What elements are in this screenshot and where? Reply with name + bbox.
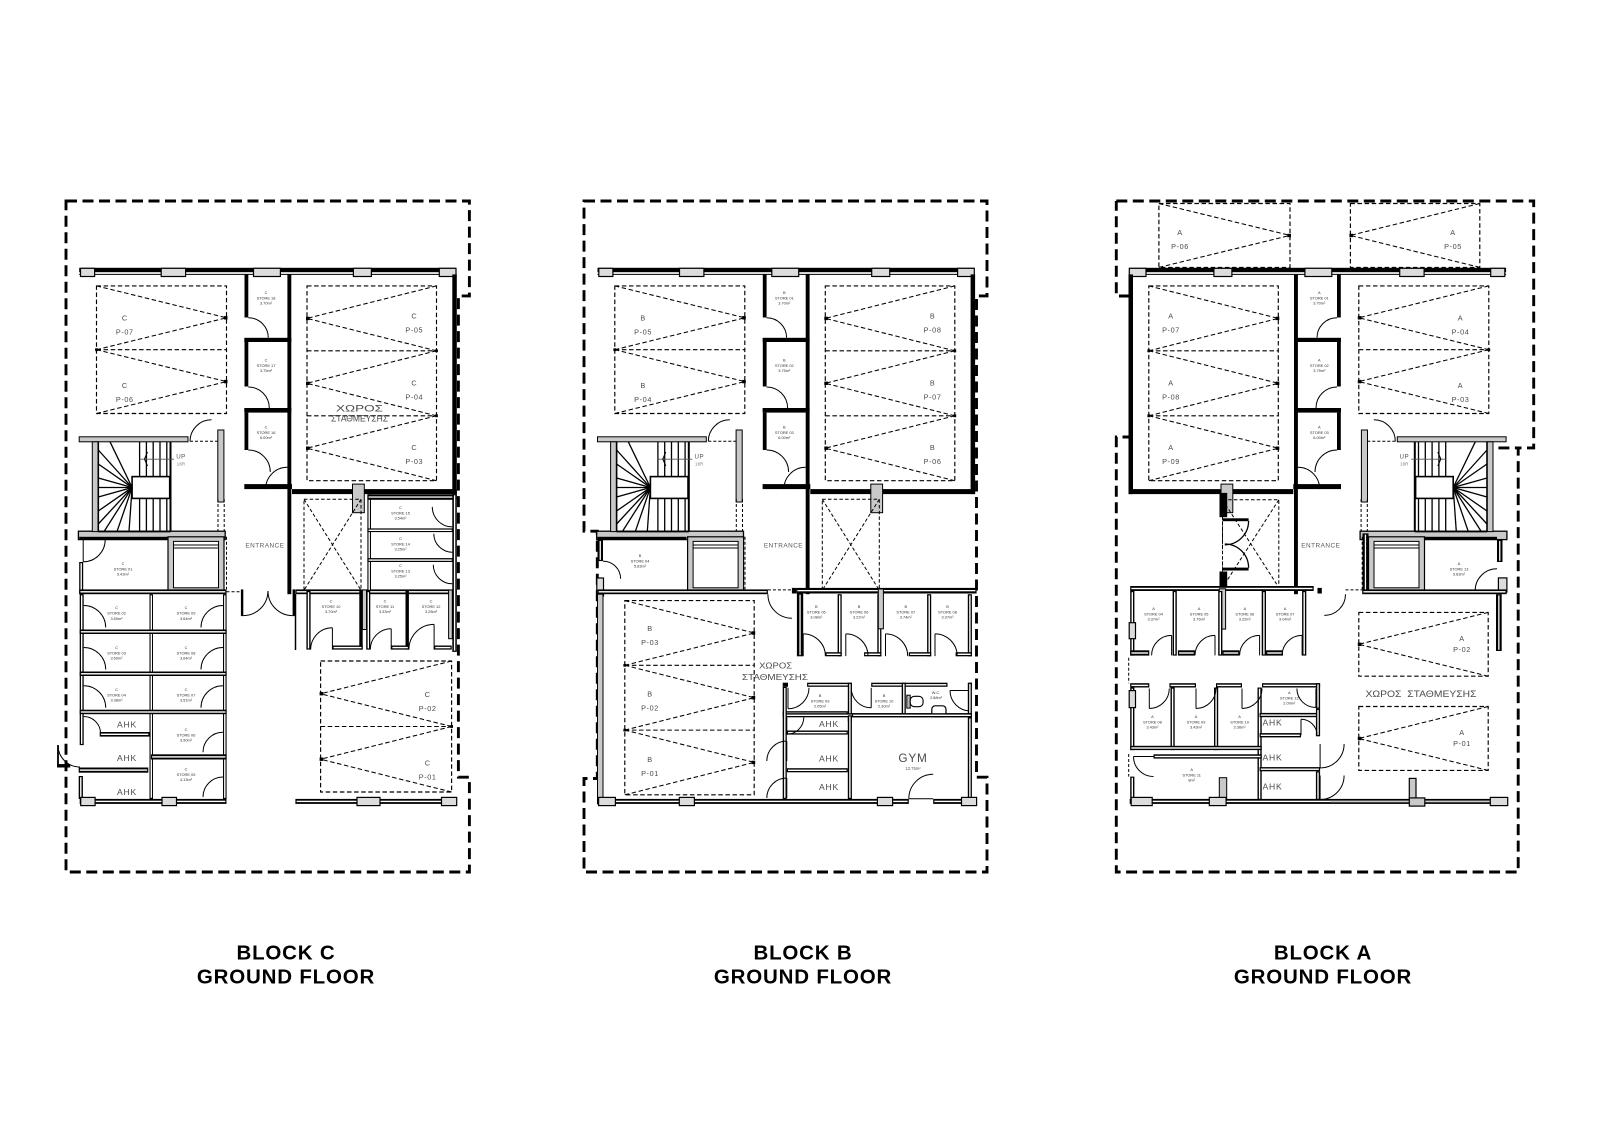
svg-text:AHK: AHK <box>1262 718 1282 728</box>
svg-text:STORE 03: STORE 03 <box>1310 430 1329 435</box>
svg-text:GYM: GYM <box>898 751 927 765</box>
svg-text:STORE 09: STORE 09 <box>177 611 196 616</box>
svg-text:A: A <box>1243 606 1246 611</box>
svg-text:A: A <box>1151 714 1154 719</box>
svg-text:C: C <box>425 759 431 768</box>
svg-text:AHK: AHK <box>117 787 137 797</box>
svg-text:STORE 04: STORE 04 <box>1144 611 1164 616</box>
svg-text:C: C <box>399 536 402 541</box>
svg-text:13.75m²: 13.75m² <box>905 766 921 771</box>
svg-text:A: A <box>1459 728 1464 737</box>
svg-text:STORE 01: STORE 01 <box>1310 295 1329 300</box>
svg-text:3.70m²: 3.70m² <box>325 609 338 614</box>
svg-text:P-03: P-03 <box>641 638 659 647</box>
svg-text:P-07: P-07 <box>924 393 942 402</box>
svg-text:B: B <box>946 604 949 609</box>
svg-text:UP: UP <box>1399 454 1409 461</box>
svg-text:C: C <box>411 312 417 321</box>
svg-text:STORE 05: STORE 05 <box>177 772 196 777</box>
svg-text:C: C <box>122 561 125 566</box>
svg-text:C: C <box>265 425 268 430</box>
svg-text:B: B <box>640 381 645 390</box>
svg-text:ENTRANCE: ENTRANCE <box>1301 543 1340 550</box>
svg-text:A: A <box>1284 606 1287 611</box>
svg-text:3.51m²: 3.51m² <box>180 698 193 703</box>
svg-text:3.08m²: 3.08m² <box>810 615 823 620</box>
svg-text:3.37m²: 3.37m² <box>1147 617 1160 622</box>
svg-text:B: B <box>930 312 935 321</box>
svg-text:3.75m²: 3.75m² <box>778 368 791 373</box>
svg-text:B: B <box>647 624 652 633</box>
svg-text:C: C <box>115 687 118 692</box>
svg-text:P-03: P-03 <box>405 457 423 466</box>
svg-text:B: B <box>640 314 645 323</box>
svg-text:A: A <box>1458 381 1463 390</box>
svg-text:P-04: P-04 <box>634 395 652 404</box>
svg-text:ENTRANCE: ENTRANCE <box>764 543 803 550</box>
svg-text:C: C <box>425 690 431 699</box>
svg-text:3.33m²: 3.33m² <box>379 609 392 614</box>
svg-text:ΧΩΡΟΣ: ΧΩΡΟΣ <box>336 404 384 414</box>
svg-text:B: B <box>647 690 652 699</box>
svg-text:ΧΩΡΟΣ ΣΤΑΘΜΕΥΣΗΣ: ΧΩΡΟΣ ΣΤΑΘΜΕΥΣΗΣ <box>1366 689 1478 699</box>
svg-text:A: A <box>1459 634 1464 643</box>
svg-text:A: A <box>1168 443 1173 452</box>
svg-text:A: A <box>1318 358 1321 363</box>
svg-text:STORE 18: STORE 18 <box>257 295 276 300</box>
svg-text:A: A <box>1168 379 1173 388</box>
svg-text:C: C <box>185 767 188 772</box>
svg-text:STORE 06: STORE 06 <box>177 732 196 737</box>
svg-text:C: C <box>185 687 188 692</box>
svg-text:STORE 08: STORE 08 <box>177 650 196 655</box>
svg-text:B: B <box>639 553 642 558</box>
svg-text:STORE 03: STORE 03 <box>775 430 794 435</box>
svg-text:B: B <box>904 604 907 609</box>
svg-text:3.50m²: 3.50m² <box>110 656 123 661</box>
svg-text:B: B <box>647 755 652 764</box>
svg-text:P-06: P-06 <box>116 395 134 404</box>
svg-text:3.43m²: 3.43m² <box>1190 725 1203 730</box>
svg-text:STORE 02: STORE 02 <box>775 363 794 368</box>
svg-text:P-01: P-01 <box>1453 739 1471 748</box>
svg-text:B: B <box>883 693 886 698</box>
svg-text:P-05: P-05 <box>1444 242 1462 251</box>
svg-text:3.75m²: 3.75m² <box>260 368 273 373</box>
svg-text:P-04: P-04 <box>405 393 423 402</box>
svg-text:3.76m²: 3.76m² <box>1193 617 1206 622</box>
svg-text:STORE 10: STORE 10 <box>1230 719 1250 724</box>
svg-text:STORE 09: STORE 09 <box>811 698 830 703</box>
svg-text:P-04: P-04 <box>1452 328 1470 337</box>
svg-text:18R: 18R <box>1400 462 1409 467</box>
svg-text:AHK: AHK <box>819 754 839 764</box>
svg-text:2.88m²: 2.88m² <box>930 695 943 700</box>
svg-text:C: C <box>411 443 417 452</box>
svg-text:C: C <box>384 599 387 604</box>
svg-text:STORE 04: STORE 04 <box>631 558 651 563</box>
svg-text:3.70m²: 3.70m² <box>260 301 273 306</box>
svg-text:P-05: P-05 <box>634 328 652 337</box>
svg-text:BLOCK B: BLOCK B <box>754 942 853 965</box>
svg-text:AHK: AHK <box>117 753 137 763</box>
svg-text:STORE 01: STORE 01 <box>114 566 133 571</box>
svg-text:STORE 15: STORE 15 <box>391 510 410 515</box>
svg-text:P-02: P-02 <box>1453 645 1471 654</box>
svg-text:B: B <box>815 604 818 609</box>
svg-text:ENTRANCE: ENTRANCE <box>245 543 284 550</box>
svg-text:2.09m²: 2.09m² <box>1283 701 1296 706</box>
svg-text:3.74m²: 3.74m² <box>900 615 913 620</box>
svg-text:BLOCK A: BLOCK A <box>1274 942 1372 965</box>
svg-text:STORE 06: STORE 06 <box>850 609 869 614</box>
svg-text:3.36m²: 3.36m² <box>1234 725 1247 730</box>
svg-text:6.00m²: 6.00m² <box>260 435 273 440</box>
svg-text:GROUND FLOOR: GROUND FLOOR <box>1234 966 1412 989</box>
svg-text:ΣΤΑΘΜΕΥΣΗΣ: ΣΤΑΘΜΕΥΣΗΣ <box>331 414 389 424</box>
svg-text:A: A <box>1458 314 1463 323</box>
svg-text:P-03: P-03 <box>1452 395 1470 404</box>
svg-text:C: C <box>122 314 128 323</box>
svg-text:B: B <box>858 604 861 609</box>
svg-text:GROUND FLOOR: GROUND FLOOR <box>714 966 892 989</box>
svg-text:A: A <box>1152 606 1155 611</box>
svg-text:BLOCK C: BLOCK C <box>237 942 336 965</box>
svg-text:18R: 18R <box>177 462 186 467</box>
svg-text:STORE 07: STORE 07 <box>177 692 196 697</box>
svg-text:5.83m²: 5.83m² <box>1453 572 1466 577</box>
svg-text:A: A <box>1458 561 1461 566</box>
svg-text:2.30m²: 2.30m² <box>878 704 891 709</box>
svg-text:8m²: 8m² <box>1188 778 1195 783</box>
svg-text:3.64m²: 3.64m² <box>180 616 193 621</box>
svg-text:4.13m²: 4.13m² <box>180 777 193 782</box>
svg-text:AHK: AHK <box>1262 753 1282 763</box>
svg-text:3.25m²: 3.25m² <box>394 547 407 552</box>
svg-text:STORE 12: STORE 12 <box>1280 695 1299 700</box>
svg-text:P-07: P-07 <box>1162 326 1180 335</box>
svg-text:3.22m²: 3.22m² <box>853 615 866 620</box>
svg-text:C: C <box>185 645 188 650</box>
svg-text:A: A <box>1318 290 1321 295</box>
svg-text:3.70m²: 3.70m² <box>778 301 791 306</box>
svg-text:3.54m²: 3.54m² <box>394 516 407 521</box>
svg-text:GROUND FLOOR: GROUND FLOOR <box>197 966 375 989</box>
svg-text:3.37m²: 3.37m² <box>941 615 954 620</box>
svg-text:C: C <box>399 563 402 568</box>
svg-text:STORE 12: STORE 12 <box>422 604 441 609</box>
svg-text:STORE 08: STORE 08 <box>938 609 957 614</box>
svg-text:18R: 18R <box>695 462 704 467</box>
svg-text:STORE 09: STORE 09 <box>1187 719 1206 724</box>
svg-text:C: C <box>115 605 118 610</box>
svg-text:3.04m²: 3.04m² <box>1279 617 1292 622</box>
svg-text:3.50m²: 3.50m² <box>110 616 123 621</box>
svg-text:P-05: P-05 <box>405 326 423 335</box>
svg-text:3.28m²: 3.28m² <box>425 609 438 614</box>
svg-text:B: B <box>783 358 786 363</box>
svg-text:P-06: P-06 <box>924 457 942 466</box>
svg-text:A: A <box>1318 425 1321 430</box>
svg-text:AHK: AHK <box>819 782 839 792</box>
svg-text:STORE 07: STORE 07 <box>1276 611 1295 616</box>
svg-text:W.C.: W.C. <box>932 690 940 695</box>
svg-text:STORE 17: STORE 17 <box>257 363 276 368</box>
svg-text:C: C <box>399 505 402 510</box>
svg-text:STORE 01: STORE 01 <box>775 295 794 300</box>
svg-text:STORE 05: STORE 05 <box>807 609 826 614</box>
svg-text:A: A <box>1168 312 1173 321</box>
svg-text:B: B <box>930 443 935 452</box>
svg-text:STORE 07: STORE 07 <box>896 609 915 614</box>
svg-text:3.90m²: 3.90m² <box>180 738 193 743</box>
svg-text:AHK: AHK <box>117 720 137 730</box>
svg-text:2.05m²: 2.05m² <box>814 704 827 709</box>
svg-text:P-08: P-08 <box>924 326 942 335</box>
svg-text:A: A <box>1198 606 1201 611</box>
svg-text:A: A <box>1177 228 1182 237</box>
svg-text:P-07: P-07 <box>116 328 134 337</box>
svg-text:P-08: P-08 <box>1162 393 1180 402</box>
svg-text:A: A <box>1238 714 1241 719</box>
svg-text:STORE 03: STORE 03 <box>107 650 126 655</box>
svg-text:5.83m²: 5.83m² <box>634 564 647 569</box>
svg-text:STORE 10: STORE 10 <box>322 604 342 609</box>
svg-text:3.64m²: 3.64m² <box>180 656 193 661</box>
svg-text:STORE 02: STORE 02 <box>107 611 126 616</box>
svg-text:STORE 16: STORE 16 <box>257 430 276 435</box>
svg-text:3.25m²: 3.25m² <box>394 574 407 579</box>
svg-text:C: C <box>122 381 128 390</box>
svg-text:STORE 11: STORE 11 <box>376 604 394 609</box>
svg-text:STORE 08: STORE 08 <box>1143 719 1162 724</box>
svg-text:P-01: P-01 <box>419 773 437 782</box>
svg-text:B: B <box>783 290 786 295</box>
svg-text:B: B <box>783 425 786 430</box>
svg-text:B: B <box>819 693 822 698</box>
svg-text:A: A <box>1195 714 1198 719</box>
svg-text:STORE 04: STORE 04 <box>107 692 127 697</box>
svg-text:3.75m²: 3.75m² <box>1313 368 1326 373</box>
svg-text:STORE 13: STORE 13 <box>391 568 410 573</box>
svg-text:3.22m²: 3.22m² <box>1239 617 1252 622</box>
svg-text:STORE 06: STORE 06 <box>1235 611 1254 616</box>
svg-text:B: B <box>930 379 935 388</box>
svg-text:P-09: P-09 <box>1162 457 1180 466</box>
svg-text:P-01: P-01 <box>641 769 659 778</box>
svg-text:3.38m²: 3.38m² <box>110 698 123 703</box>
svg-text:C: C <box>185 605 188 610</box>
svg-text:STORE 05: STORE 05 <box>1190 611 1209 616</box>
svg-text:P-02: P-02 <box>419 704 437 713</box>
svg-text:3.43m²: 3.43m² <box>1146 725 1159 730</box>
svg-text:UP: UP <box>176 454 186 461</box>
svg-text:C: C <box>185 727 188 732</box>
svg-text:C: C <box>411 379 417 388</box>
svg-text:A: A <box>1288 690 1291 695</box>
svg-text:C: C <box>115 645 118 650</box>
svg-text:AHK: AHK <box>1262 782 1282 792</box>
svg-text:STORE 02: STORE 02 <box>1310 363 1329 368</box>
svg-text:P-06: P-06 <box>1171 242 1189 251</box>
svg-text:C: C <box>430 599 433 604</box>
svg-text:UP: UP <box>694 454 704 461</box>
svg-text:C: C <box>265 290 268 295</box>
svg-text:C: C <box>330 599 333 604</box>
svg-text:C: C <box>265 358 268 363</box>
svg-text:STORE 11: STORE 11 <box>1182 772 1200 777</box>
svg-text:3.70m²: 3.70m² <box>1313 301 1326 306</box>
svg-text:ΧΩΡΟΣ: ΧΩΡΟΣ <box>759 661 792 671</box>
svg-text:6.00m²: 6.00m² <box>1313 435 1326 440</box>
svg-text:STORE 13: STORE 13 <box>1450 566 1469 571</box>
svg-text:AHK: AHK <box>819 719 839 729</box>
svg-text:A: A <box>1190 767 1193 772</box>
svg-text:STORE 10: STORE 10 <box>875 698 895 703</box>
svg-text:ΣΤΑΘΜΕΥΣΗΣ: ΣΤΑΘΜΕΥΣΗΣ <box>742 672 808 682</box>
svg-text:5.43m²: 5.43m² <box>117 572 130 577</box>
svg-text:STORE 14: STORE 14 <box>391 541 411 546</box>
svg-text:6.00m²: 6.00m² <box>778 435 791 440</box>
svg-text:A: A <box>1450 228 1455 237</box>
svg-text:P-02: P-02 <box>641 704 659 713</box>
